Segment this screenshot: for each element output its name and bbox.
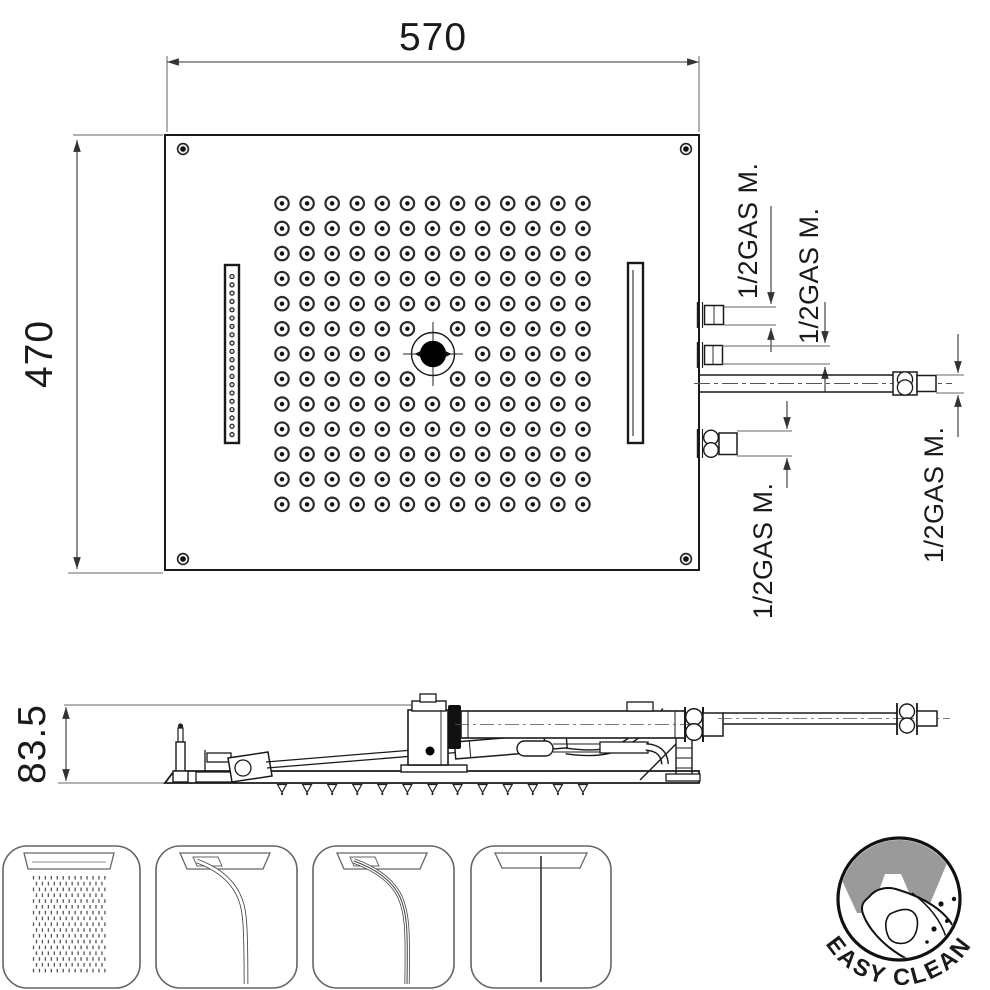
side-main-cylinder: [455, 702, 690, 738]
right-waterfall-slot: [628, 263, 643, 443]
spray-mode-icons: [3, 846, 611, 988]
waterfall-head-profile: [180, 853, 270, 869]
inlet-stub-1: [698, 302, 724, 328]
icon-single-stream: [471, 846, 611, 988]
stub1-extension-lines: [724, 307, 776, 325]
icon-rain-spray: [3, 846, 140, 988]
drawing-svg: 570 470: [0, 0, 990, 990]
side-outlet-pipe: [685, 703, 950, 742]
stub2-extension-lines: [722, 346, 830, 364]
width-dimension-label: 570: [399, 16, 467, 59]
connection-label-1: 1/2GAS M.: [733, 162, 763, 299]
side-view: 83.5: [11, 694, 950, 795]
central-hole: [420, 341, 446, 367]
side-inlet-pipe: [694, 372, 952, 395]
connection-label-2: 1/2GAS M.: [794, 207, 824, 344]
side-teeth: [278, 785, 588, 796]
inlet-stub-2: [698, 342, 723, 368]
height-dimension-label: 470: [18, 320, 61, 388]
cascade-head-profile: [337, 853, 427, 869]
side-valve-block: [401, 694, 467, 772]
side-height-dimension-label: 83.5: [11, 704, 54, 784]
side-left-pin: [173, 723, 188, 782]
easy-clean-badge: EASY CLEAN: [820, 812, 978, 990]
inlet-stub-3: [698, 429, 737, 458]
inlet-fittings: 1/2GAS M. 1/2GAS M.: [694, 162, 964, 619]
top-view: 570 470: [18, 16, 964, 619]
connection-label-3: 1/2GAS M.: [919, 426, 949, 563]
connection-label-4: 1/2GAS M.: [748, 482, 778, 619]
stub3-extension-lines: [737, 431, 792, 456]
rain-head-profile: [24, 853, 114, 869]
shower-head-technical-drawing: 570 470: [0, 0, 990, 990]
pipe-extension-lines: [936, 375, 964, 393]
badge-fingernail: [886, 909, 918, 943]
icon-waterfall-spray: [156, 846, 297, 988]
icon-cascade-spray: [313, 846, 454, 988]
